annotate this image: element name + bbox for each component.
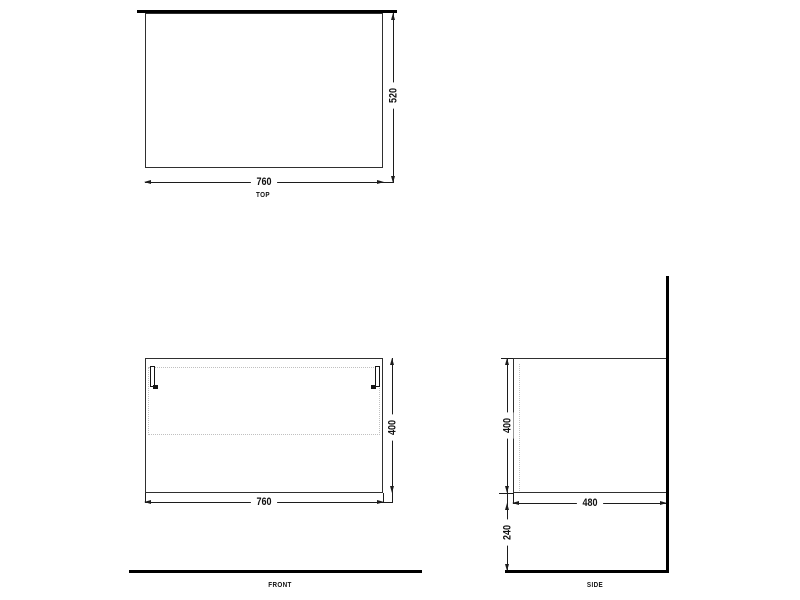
front-floor-line: [129, 570, 422, 573]
front-width-dim-text: 760: [251, 497, 277, 508]
front-height-dim-arrow-bottom: [390, 486, 394, 493]
front-height-dim-arrow-top: [390, 358, 394, 365]
front-left-handle-foot: [153, 385, 158, 389]
top-width-dim-arrow-right: [377, 180, 384, 184]
front-width-dim-arrow-right: [377, 500, 384, 504]
front-width-dim-arrow-left: [144, 500, 151, 504]
side-wall-line: [666, 276, 669, 573]
side-clearance-dim-arrow-top: [505, 503, 509, 510]
front-right-handle-foot: [371, 385, 376, 389]
top-depth-dim-arrow-bottom: [391, 176, 395, 183]
side-height-dim-arrow-bottom: [505, 486, 509, 493]
technical-drawing-canvas: 760 520 TOP 400 760 FRONT: [0, 0, 800, 600]
top-depth-dim-arrow-top: [391, 13, 395, 20]
side-height-dim-arrow-top: [505, 358, 509, 365]
side-view-outline: [513, 358, 666, 493]
side-height-dim-text: 400: [503, 412, 514, 438]
side-view-label: SIDE: [559, 582, 631, 589]
front-view-label: FRONT: [244, 582, 316, 589]
front-door-dashed-outline: [148, 367, 380, 435]
side-depth-dim-arrow-left: [512, 501, 519, 505]
top-width-dim-text: 760: [251, 177, 277, 188]
side-clearance-dim-text: 240: [503, 519, 514, 545]
side-clearance-dim-arrow-bottom: [505, 564, 509, 571]
side-door-dashed-line: [519, 364, 520, 491]
front-right-handle: [375, 366, 380, 387]
top-width-dim-arrow-left: [144, 180, 151, 184]
front-left-handle: [150, 366, 155, 387]
side-floor-line: [505, 570, 669, 573]
side-depth-dim-text: 480: [577, 498, 603, 509]
top-view-outline: [145, 13, 383, 168]
top-depth-dim-text: 520: [389, 82, 400, 108]
front-height-dim-text: 400: [388, 414, 399, 440]
side-depth-dim-arrow-right: [660, 501, 667, 505]
top-view-label: TOP: [227, 192, 299, 199]
